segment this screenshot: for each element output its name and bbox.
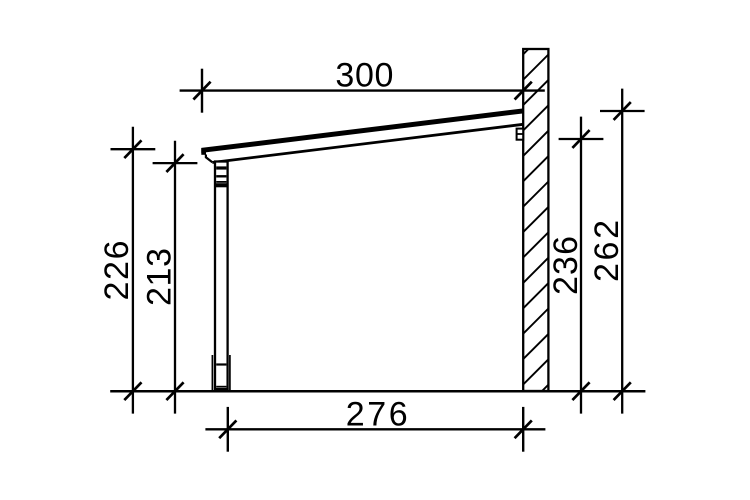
- svg-text:276: 276: [346, 396, 408, 434]
- svg-text:236: 236: [547, 236, 585, 295]
- svg-text:213: 213: [140, 248, 178, 306]
- svg-text:300: 300: [335, 57, 393, 95]
- svg-text:262: 262: [588, 220, 626, 282]
- svg-text:226: 226: [98, 241, 136, 301]
